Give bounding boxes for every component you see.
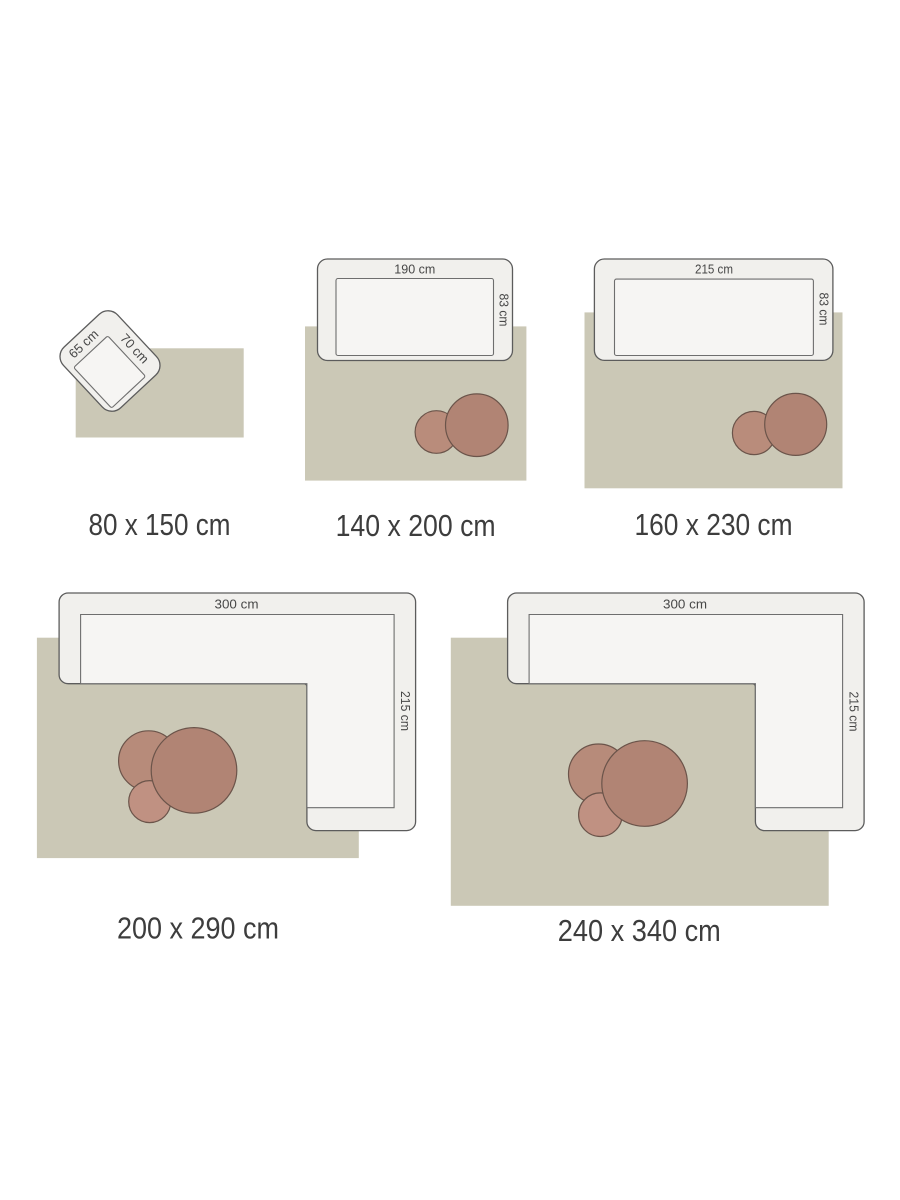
svg-text:215 cm: 215 cm [846, 692, 861, 732]
svg-text:140 x 200 cm: 140 x 200 cm [336, 508, 496, 543]
svg-text:240 x 340 cm: 240 x 340 cm [558, 913, 721, 948]
svg-text:83 cm: 83 cm [817, 293, 832, 326]
svg-text:300 cm: 300 cm [215, 596, 259, 611]
svg-text:215 cm: 215 cm [398, 691, 413, 731]
svg-text:160 x 230 cm: 160 x 230 cm [635, 507, 793, 542]
svg-text:83 cm: 83 cm [497, 294, 512, 327]
svg-text:215 cm: 215 cm [695, 262, 733, 277]
svg-text:80 x 150 cm: 80 x 150 cm [89, 507, 231, 542]
svg-text:200 x 290 cm: 200 x 290 cm [117, 911, 279, 946]
svg-text:190 cm: 190 cm [394, 261, 435, 276]
svg-text:300 cm: 300 cm [663, 596, 707, 611]
